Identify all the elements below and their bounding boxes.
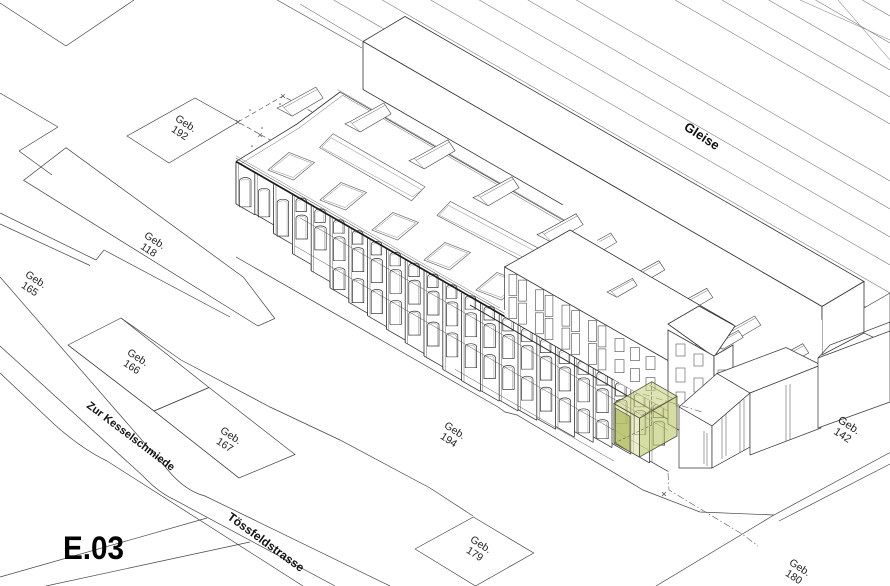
svg-text:Gleise: Gleise xyxy=(682,119,723,153)
svg-text:Zur Kesselschmiede: Zur Kesselschmiede xyxy=(84,400,177,474)
svg-text:Tössfeldstrasse: Tössfeldstrasse xyxy=(225,510,307,575)
svg-text:E.03: E.03 xyxy=(63,530,124,566)
